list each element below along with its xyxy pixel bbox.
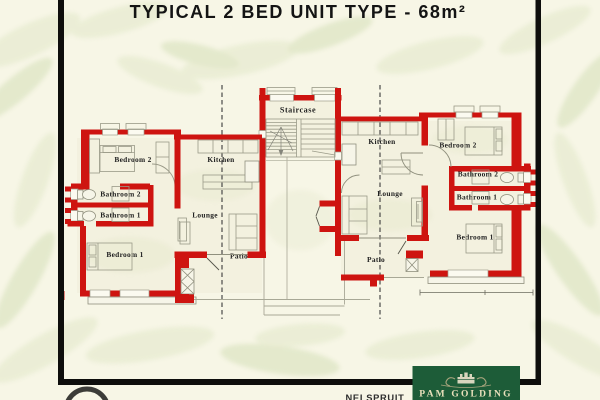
svg-text:Bedroom 2: Bedroom 2 — [439, 141, 476, 150]
svg-text:Bathroom 1: Bathroom 1 — [457, 193, 497, 202]
svg-text:Bedroom 1: Bedroom 1 — [106, 250, 143, 259]
svg-text:Patio: Patio — [230, 252, 248, 261]
svg-text:Kitchen: Kitchen — [368, 137, 395, 146]
svg-text:TYPICAL 2 BED UNIT TYPE - 68m²: TYPICAL 2 BED UNIT TYPE - 68m² — [130, 2, 467, 22]
svg-text:Bathroom 1: Bathroom 1 — [100, 210, 140, 219]
svg-text:Lounge: Lounge — [377, 189, 403, 198]
svg-text:Bedroom 1: Bedroom 1 — [456, 233, 493, 242]
svg-text:Lounge: Lounge — [192, 211, 218, 220]
svg-text:NELSPRUIT: NELSPRUIT — [346, 393, 405, 400]
svg-text:Patio: Patio — [367, 255, 385, 264]
svg-text:Bedroom 2: Bedroom 2 — [114, 155, 151, 164]
svg-text:PAM GOLDING: PAM GOLDING — [419, 390, 512, 400]
svg-text:Bathroom 2: Bathroom 2 — [100, 189, 140, 198]
svg-text:Staircase: Staircase — [280, 106, 316, 115]
svg-text:Kitchen: Kitchen — [207, 155, 234, 164]
